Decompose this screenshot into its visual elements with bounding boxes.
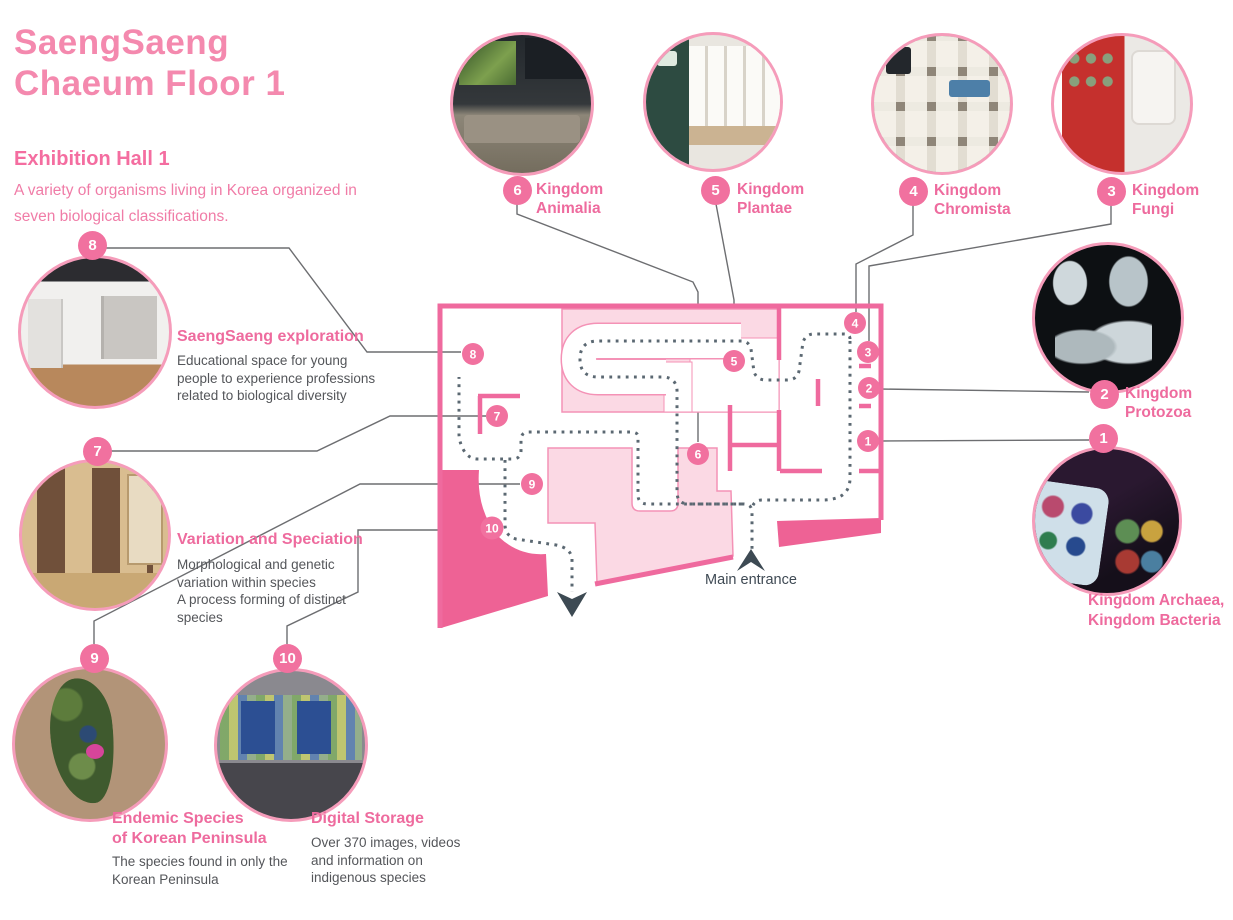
station-badge-1[interactable]: 1	[1089, 424, 1118, 453]
svg-text:6: 6	[695, 448, 702, 462]
station-badge-7[interactable]: 7	[83, 437, 112, 466]
station-photo-5-kingdom-plantae	[643, 32, 783, 172]
connector-4	[856, 205, 913, 312]
label-kingdom-chromista: KingdomChromista	[934, 181, 1011, 219]
map-marker-4[interactable]: 4	[844, 312, 866, 334]
station-photo-10-digital-storage	[214, 668, 368, 822]
map-marker-5[interactable]: 5	[723, 350, 745, 372]
station-badge-4[interactable]: 4	[899, 177, 928, 206]
floor-guide-page: Main entrance 1 2 3 4 5 6 7 8 9 10 Saeng…	[0, 0, 1233, 920]
station-badge-9[interactable]: 9	[80, 644, 109, 673]
entrance-label: Main entrance	[705, 572, 797, 588]
hall-description: A variety of organisms living in Korea o…	[14, 178, 357, 230]
svg-text:7: 7	[494, 410, 501, 424]
station-photo-4-kingdom-chromista	[871, 33, 1013, 175]
label-endemic-title: Endemic Species of Korean Peninsula	[112, 809, 267, 849]
floor-plan: Main entrance	[438, 306, 881, 628]
map-marker-2[interactable]: 2	[858, 377, 880, 399]
svg-text:8: 8	[470, 348, 477, 362]
svg-text:2: 2	[866, 382, 873, 396]
label-endemic-desc: The species found in only the Korean Pen…	[112, 853, 288, 888]
station-badge-8[interactable]: 8	[78, 231, 107, 260]
map-marker-7[interactable]: 7	[486, 405, 508, 427]
entrance-arrow-icon	[737, 549, 765, 571]
station-badge-10[interactable]: 10	[273, 644, 302, 673]
map-marker-3[interactable]: 3	[857, 341, 879, 363]
label-archaea-bacteria: Kingdom Archaea,Kingdom Bacteria	[1088, 591, 1224, 631]
page-title: SaengSaeng Chaeum Floor 1	[14, 22, 285, 104]
svg-text:5: 5	[731, 355, 738, 369]
exit-arrow-icon	[557, 592, 587, 617]
map-marker-9[interactable]: 9	[521, 473, 543, 495]
svg-text:9: 9	[529, 478, 536, 492]
hall-heading: Exhibition Hall 1	[14, 148, 170, 171]
floor-solid-area-right	[777, 518, 881, 547]
label-digital-storage-title: Digital Storage	[311, 809, 424, 829]
floor-map: Main entrance 1 2 3 4 5 6 7 8 9 10	[0, 0, 1233, 920]
connector-2	[880, 389, 1089, 392]
station-badge-3[interactable]: 3	[1097, 177, 1126, 206]
station-photo-6-kingdom-animalia	[450, 32, 594, 176]
station-photo-9-endemic-species	[12, 666, 168, 822]
label-kingdom-fungi: KingdomFungi	[1132, 181, 1199, 219]
label-variation-desc: Morphological and genetic variation with…	[177, 556, 346, 626]
map-marker-1[interactable]: 1	[857, 430, 879, 452]
floor-zone-top-slot	[664, 362, 692, 412]
label-kingdom-plantae: KingdomPlantae	[737, 180, 804, 218]
station-photo-3-kingdom-fungi	[1051, 33, 1193, 175]
label-kingdom-animalia: KingdomAnimalia	[536, 180, 603, 218]
label-variation-title: Variation and Speciation	[177, 530, 363, 550]
label-kingdom-protozoa: KingdomProtozoa	[1125, 384, 1192, 422]
map-marker-6[interactable]: 6	[687, 443, 709, 465]
station-badge-2[interactable]: 2	[1090, 380, 1119, 409]
label-exploration-desc: Educational space for young people to ex…	[177, 352, 375, 405]
station-photo-8-exploration	[18, 255, 172, 409]
connector-1	[880, 440, 1089, 441]
svg-text:1: 1	[865, 435, 872, 449]
svg-text:4: 4	[852, 317, 859, 331]
station-photo-7-variation	[19, 459, 171, 611]
station-photo-1-archaea-bacteria	[1032, 446, 1182, 596]
map-marker-8[interactable]: 8	[462, 343, 484, 365]
station-badge-6[interactable]: 6	[503, 176, 532, 205]
svg-text:10: 10	[485, 522, 499, 536]
page-title-line1: SaengSaeng	[14, 22, 285, 63]
map-marker-10[interactable]: 10	[481, 517, 504, 540]
svg-text:3: 3	[865, 346, 872, 360]
label-digital-storage-desc: Over 370 images, videos and information …	[311, 834, 460, 887]
station-photo-2-kingdom-protozoa	[1032, 242, 1184, 394]
station-badge-5[interactable]: 5	[701, 176, 730, 205]
page-title-line2: Chaeum Floor 1	[14, 63, 285, 104]
connector-7	[111, 416, 486, 451]
label-exploration-title: SaengSaeng exploration	[177, 327, 364, 347]
